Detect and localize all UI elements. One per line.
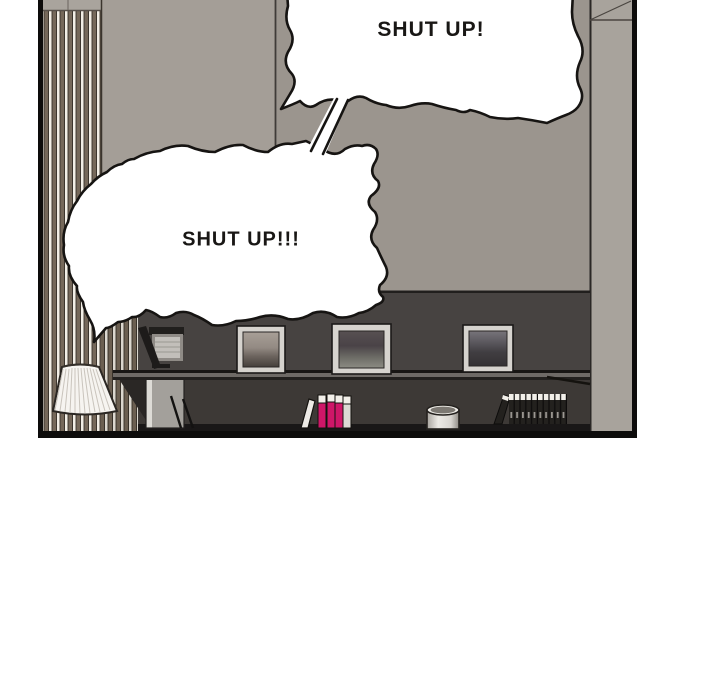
curtain-top-band <box>43 0 101 10</box>
monitor-base <box>152 364 170 368</box>
panel-border-left <box>38 0 43 438</box>
jar <box>427 405 459 429</box>
comic-panel: SHUT UP! SHUT UP!!! <box>0 0 720 700</box>
picture-frame-3 <box>463 325 513 372</box>
picture-frame-2 <box>332 324 391 374</box>
picture-frame-1 <box>237 326 285 373</box>
under-shelf-shadow <box>138 424 590 431</box>
panel-border-right <box>632 0 637 438</box>
pink-books <box>301 394 351 428</box>
panel-scene <box>0 0 720 700</box>
monitor-bezel <box>149 327 184 335</box>
speech-text-bottom: SHUT UP!!! <box>182 229 300 252</box>
speech-text-top: SHUT UP! <box>377 18 484 42</box>
wall-column <box>590 0 632 438</box>
panel-border-bottom <box>38 431 637 438</box>
